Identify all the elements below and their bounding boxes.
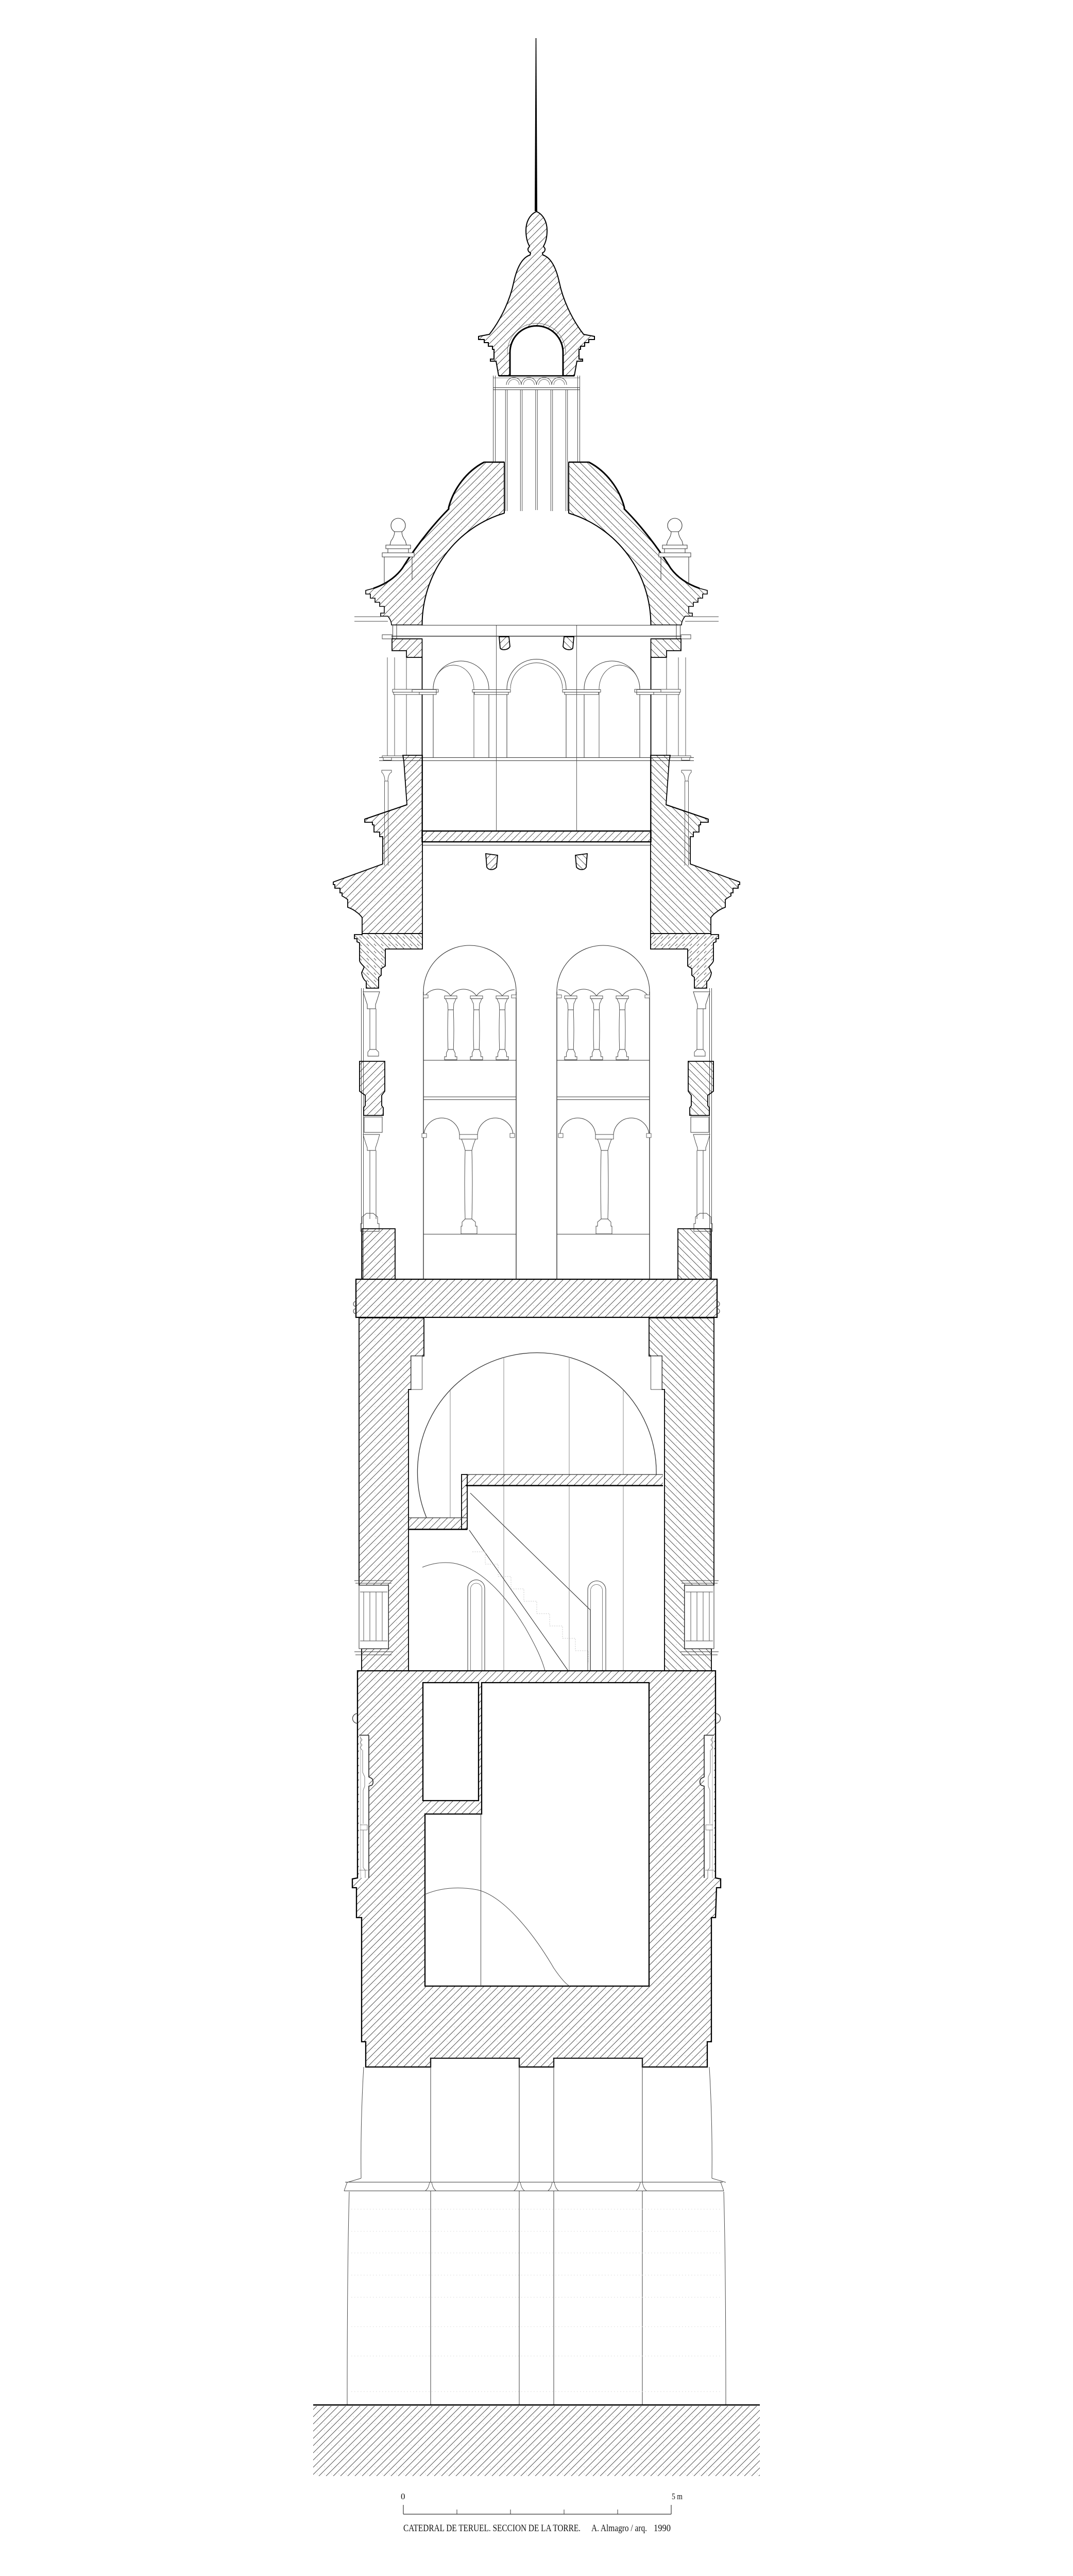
svg-text:5 m: 5 m bbox=[672, 2492, 683, 2501]
svg-text:1990: 1990 bbox=[654, 2523, 671, 2534]
svg-text:0: 0 bbox=[401, 2492, 405, 2501]
svg-text:A. Almagro / arq.: A. Almagro / arq. bbox=[591, 2523, 647, 2534]
svg-text:CATEDRAL DE TERUEL. SECCION DE: CATEDRAL DE TERUEL. SECCION DE LA TORRE. bbox=[403, 2523, 581, 2534]
